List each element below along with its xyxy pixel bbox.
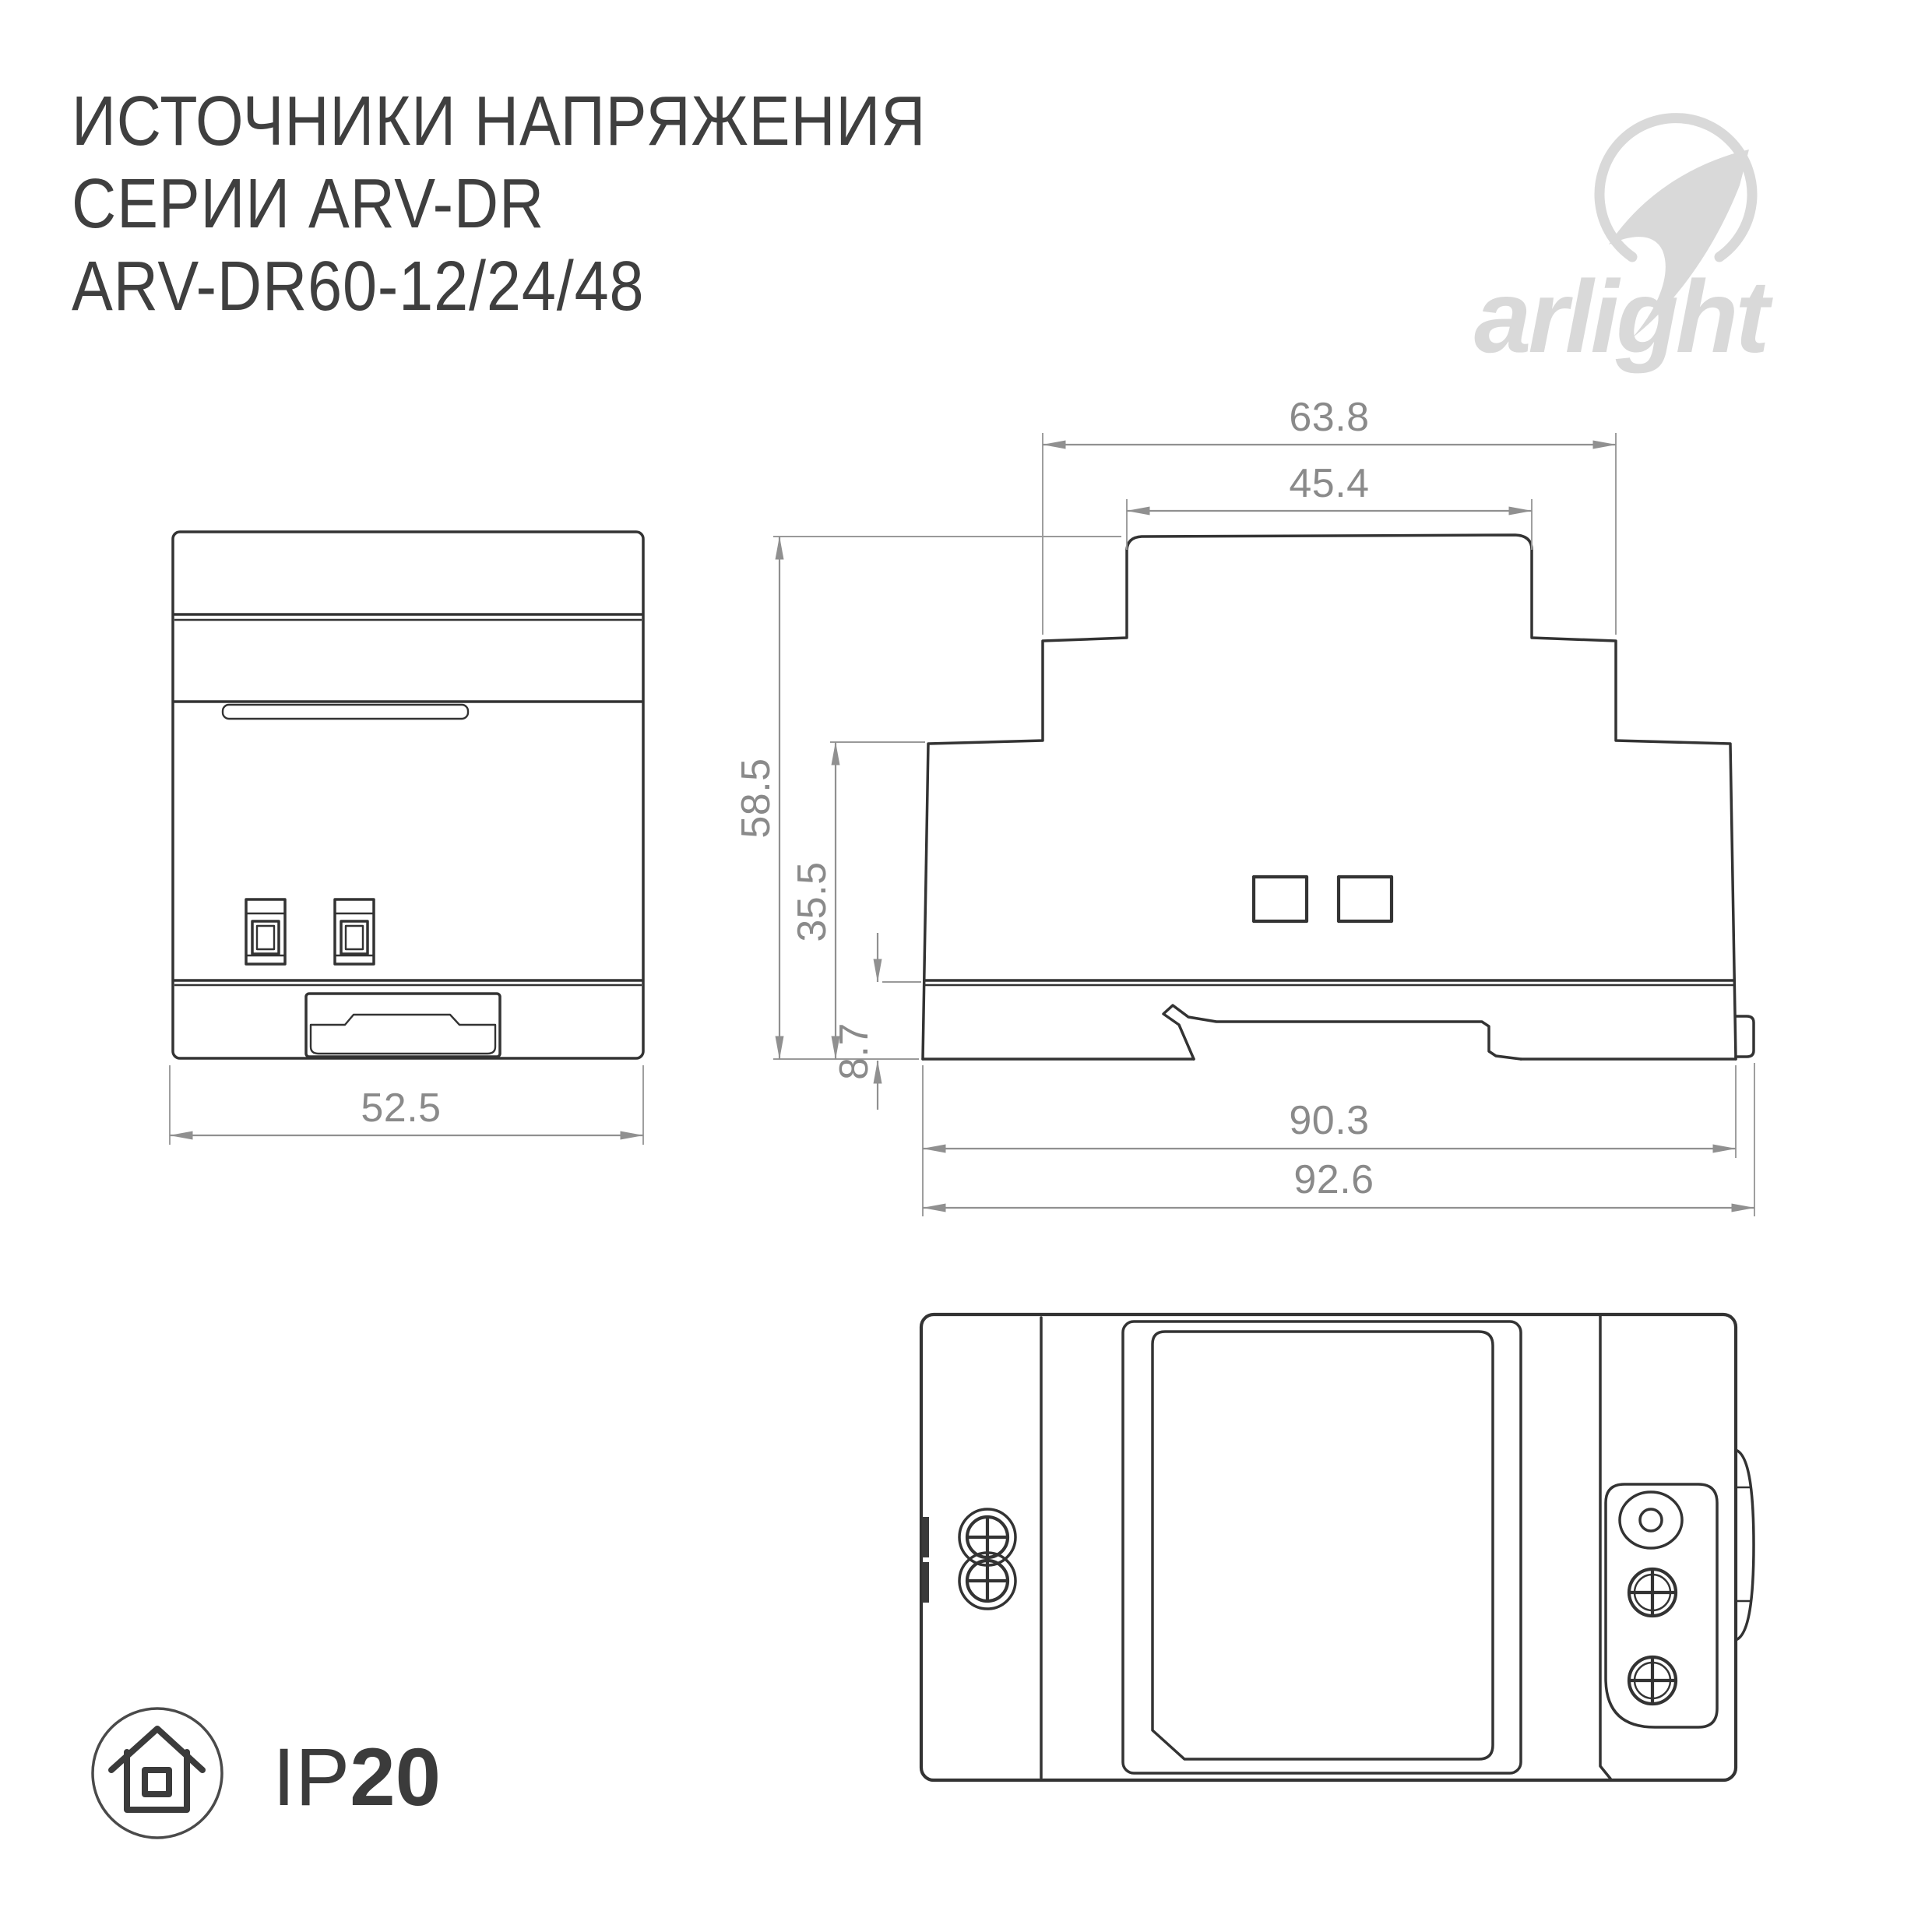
din-rail-notch (1163, 1005, 1521, 1059)
terminal-block-right (335, 899, 374, 964)
edge-slot-bottom (922, 1562, 929, 1603)
dim-label-top-width: 63.8 (1289, 395, 1369, 440)
front-label-slot (223, 705, 468, 719)
vent-square-right (1339, 877, 1392, 921)
title-line-2: СЕРИИ ARV-DR (72, 164, 544, 242)
dim-body-height: 35.5 (790, 742, 925, 1059)
dim-label-full-width: 92.6 (1293, 1157, 1374, 1202)
edge-slot-top (922, 1517, 929, 1557)
ip-badge: IP20 (93, 1709, 441, 1838)
dim-label-body-height: 35.5 (790, 861, 835, 941)
dim-label-front-width: 52.5 (361, 1086, 441, 1131)
dim-label-total-height: 58.5 (734, 758, 779, 838)
side-view: 63.8 45.4 58.5 35.5 8.7 (734, 395, 1754, 1216)
house-icon (111, 1729, 202, 1810)
dual-phillips-screw-icon (959, 1509, 1015, 1609)
phillips-screw-icon (1629, 1657, 1676, 1704)
bottom-panel (1123, 1321, 1521, 1773)
dim-label-top-inner-width: 45.4 (1289, 461, 1369, 506)
datasheet-page: ИСТОЧНИКИ НАПРЯЖЕНИЯ СЕРИИ ARV-DR ARV-DR… (0, 0, 1932, 1932)
ip-rating: IP20 (273, 1732, 441, 1823)
ip-prefix: IP (273, 1732, 350, 1823)
dim-rail-height: 8.7 (832, 933, 921, 1110)
title-line-1: ИСТОЧНИКИ НАПРЯЖЕНИЯ (72, 81, 926, 160)
bottom-view (921, 1314, 1754, 1780)
mounting-hole (1620, 1492, 1682, 1548)
technical-drawing: ИСТОЧНИКИ НАПРЯЖЕНИЯ СЕРИИ ARV-DR ARV-DR… (0, 0, 1932, 1932)
page-title: ИСТОЧНИКИ НАПРЯЖЕНИЯ СЕРИИ ARV-DR ARV-DR… (72, 81, 926, 325)
phillips-screw-icon (1629, 1569, 1676, 1616)
vent-square-left (1254, 877, 1307, 921)
title-line-3: ARV-DR60-12/24/48 (72, 246, 644, 325)
din-clip (306, 994, 500, 1057)
bottom-latch-bulge (1736, 1450, 1754, 1640)
front-view: 52.5 (170, 532, 643, 1145)
dim-label-body-width: 90.3 (1289, 1098, 1369, 1143)
logo-wordmark: arlight (1474, 259, 1773, 374)
terminal-block-left (246, 899, 285, 964)
dim-label-rail-height: 8.7 (832, 1022, 877, 1080)
dim-top-width: 63.8 (1043, 395, 1616, 635)
brand-logo: arlight (1474, 118, 1773, 374)
ip-value: 20 (350, 1732, 441, 1823)
dim-front-width: 52.5 (170, 1065, 643, 1145)
screw-panel (1606, 1484, 1717, 1727)
bottom-window (1153, 1332, 1493, 1759)
side-latch (1736, 1016, 1754, 1057)
